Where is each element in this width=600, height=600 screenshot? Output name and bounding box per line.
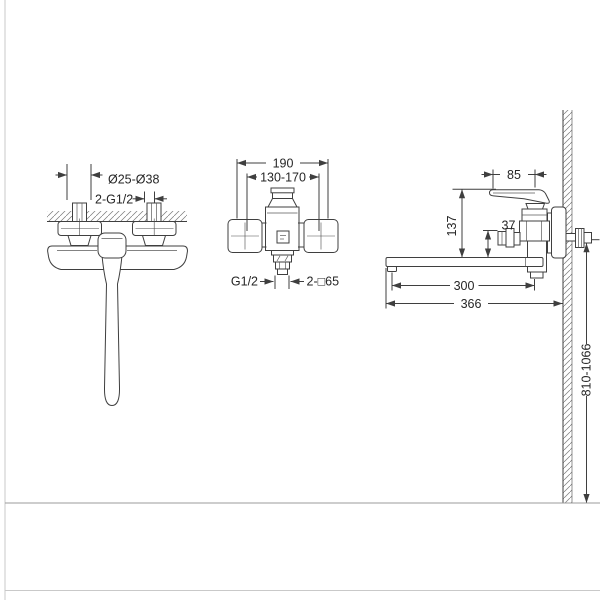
dim-label-outlet-thread: G1/2	[231, 275, 258, 289]
side-spout-tube	[386, 258, 543, 267]
dim-label-escutcheons: 2-□65	[307, 275, 340, 289]
dim-label-center-distance: 130-170	[260, 171, 306, 185]
dim-label-diverter-offset: 37	[502, 219, 516, 233]
dim-label-handle-projection: 85	[507, 168, 521, 182]
technical-drawing: Ø25-Ø38 2-G1/2	[0, 0, 600, 600]
side-elbow-cap	[531, 272, 544, 278]
side-pipe-stub	[584, 233, 592, 244]
plan-handle	[98, 233, 126, 258]
dim-label-eccentric-diameter: Ø25-Ø38	[108, 173, 159, 187]
front-handle-flare	[268, 199, 297, 208]
dim-label-mounting-height: 810-1066	[580, 344, 594, 397]
front-handle-cap	[271, 188, 294, 193]
dim-label-body-height: 137	[445, 216, 459, 237]
outlet-flange	[272, 251, 294, 256]
diverter-neck	[514, 233, 520, 246]
front-body	[266, 207, 300, 251]
plan-wall-hatch	[47, 211, 187, 222]
plan-right-neck	[143, 236, 166, 246]
side-wall-escutcheon	[552, 207, 567, 258]
plan-left-neck	[68, 236, 91, 246]
technical-drawing-page: Ø25-Ø38 2-G1/2	[0, 0, 600, 600]
dim-label-inlet-connections: 2-G1/2	[95, 193, 133, 207]
side-aerator	[388, 267, 397, 272]
side-wall-hatch	[563, 110, 572, 503]
front-logo-plate	[277, 231, 289, 243]
outlet-tip	[278, 269, 288, 275]
outlet-hex	[276, 262, 290, 269]
side-handle-neck	[526, 204, 545, 210]
dim-label-spout-length: 300	[454, 279, 475, 293]
outlet-step	[274, 255, 292, 262]
dim-label-total-projection: 366	[461, 297, 482, 311]
side-body-block	[520, 221, 550, 241]
side-spout-elbow	[528, 241, 547, 272]
side-pipe-nut	[576, 229, 585, 248]
dim-label-overall-width: 190	[273, 157, 294, 171]
page-background	[0, 0, 600, 600]
